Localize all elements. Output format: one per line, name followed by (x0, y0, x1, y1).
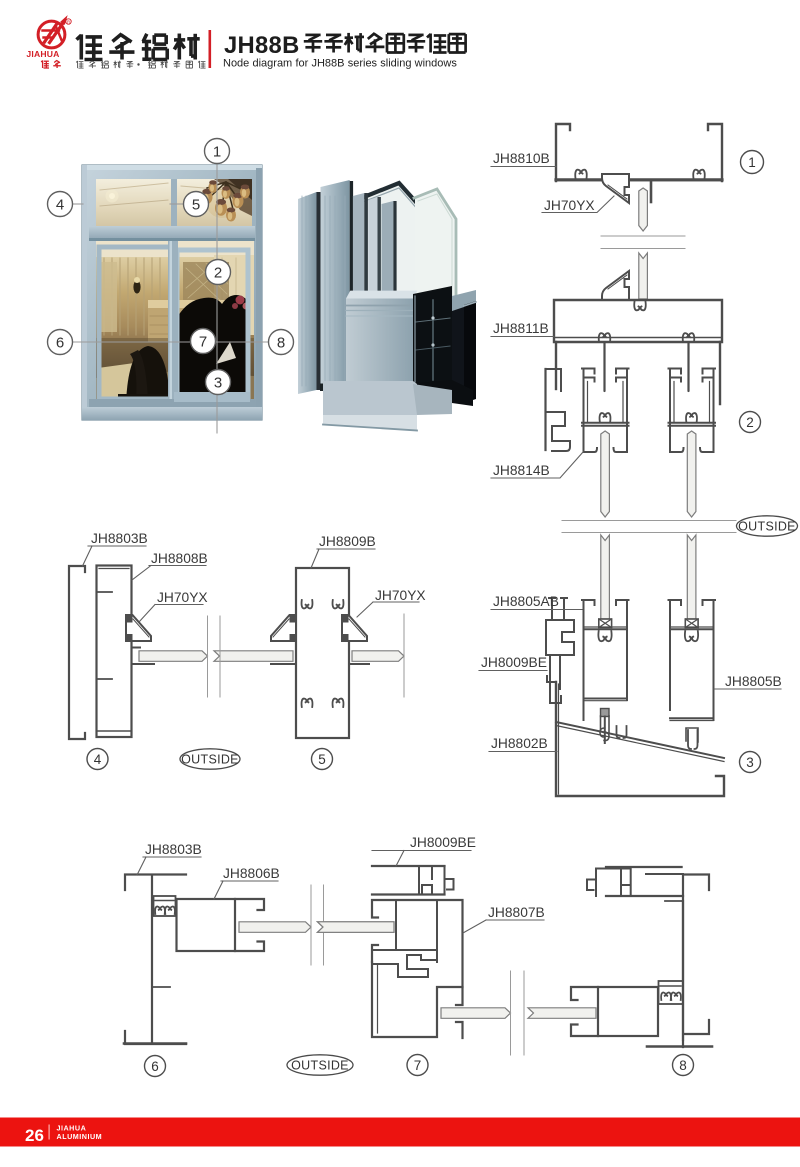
svg-text:JH70YX: JH70YX (544, 198, 595, 213)
svg-text:JH8803B: JH8803B (91, 531, 148, 546)
svg-text:6: 6 (56, 334, 64, 351)
svg-text:JH88B: JH88B (224, 32, 300, 59)
svg-text:8: 8 (679, 1058, 687, 1073)
svg-text:7: 7 (199, 333, 207, 350)
svg-text:5: 5 (318, 752, 326, 767)
svg-text:JIAHUA: JIAHUA (26, 49, 59, 59)
svg-text:JH8806B: JH8806B (223, 866, 280, 881)
svg-text:JH8009BE: JH8009BE (410, 835, 476, 850)
svg-text:2: 2 (214, 264, 222, 281)
svg-text:JH8805AB: JH8805AB (493, 594, 559, 609)
svg-text:NodediagramforJH88Bseriesslidi: NodediagramforJH88Bseriesslidingwindows (223, 58, 457, 70)
svg-text:ALUMINIUM: ALUMINIUM (57, 1132, 103, 1141)
svg-text:JH8809B: JH8809B (319, 534, 376, 549)
svg-text:1: 1 (748, 155, 756, 170)
svg-text:JH8805B: JH8805B (725, 674, 782, 689)
svg-text:JH8807B: JH8807B (488, 905, 545, 920)
svg-text:2: 2 (746, 415, 754, 430)
svg-text:26: 26 (25, 1126, 44, 1145)
svg-text:JH8803B: JH8803B (145, 842, 202, 857)
svg-text:JH8808B: JH8808B (151, 551, 208, 566)
svg-text:OUTSIDE: OUTSIDE (291, 1058, 349, 1072)
svg-text:JH8802B: JH8802B (491, 736, 548, 751)
svg-text:R: R (67, 20, 70, 25)
svg-text:4: 4 (94, 752, 102, 767)
svg-text:1: 1 (213, 143, 221, 160)
svg-text:JH8814B: JH8814B (493, 463, 550, 478)
svg-text:JH8810B: JH8810B (493, 151, 550, 166)
svg-text:JH70YX: JH70YX (375, 588, 426, 603)
svg-text:JH70YX: JH70YX (157, 590, 208, 605)
svg-text:6: 6 (151, 1059, 159, 1074)
svg-text:4: 4 (56, 196, 64, 213)
svg-text:JH8009BE: JH8009BE (481, 655, 547, 670)
svg-text:JH8811B: JH8811B (493, 321, 549, 336)
svg-text:8: 8 (277, 334, 285, 351)
svg-text:7: 7 (414, 1058, 422, 1073)
svg-text:3: 3 (746, 755, 754, 770)
svg-text:5: 5 (192, 196, 200, 213)
svg-text:3: 3 (214, 374, 222, 391)
svg-text:OUTSIDE: OUTSIDE (181, 752, 239, 766)
svg-text:OUTSIDE: OUTSIDE (738, 519, 796, 533)
